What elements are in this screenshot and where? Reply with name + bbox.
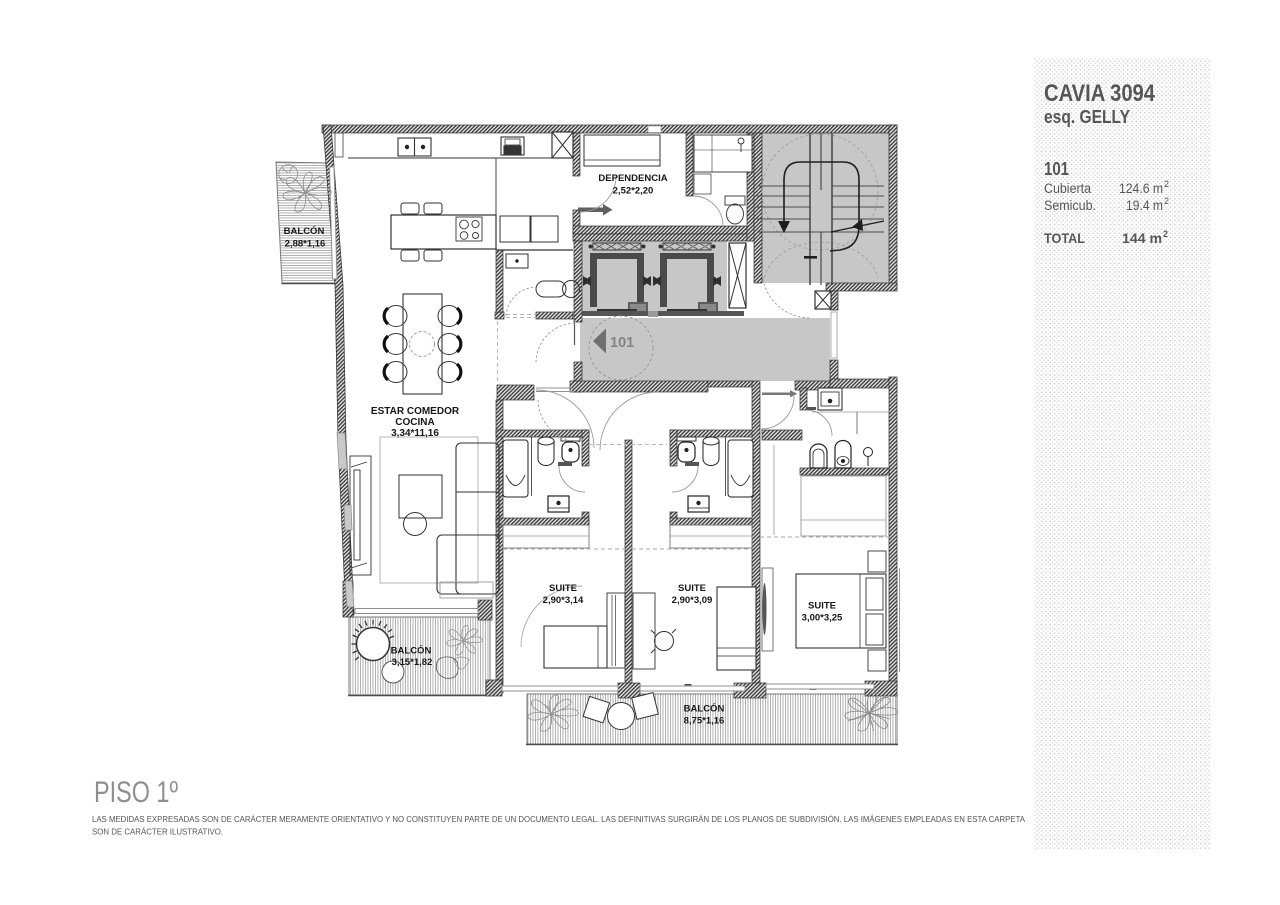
svg-text:144 m: 144 m [1122, 230, 1162, 246]
svg-text:DEPENDENCIA: DEPENDENCIA [598, 173, 667, 184]
svg-text:SUITE: SUITE [808, 601, 836, 612]
svg-text:ESTAR COMEDOR: ESTAR COMEDOR [371, 406, 460, 417]
svg-text:3,34*11,16: 3,34*11,16 [391, 428, 439, 439]
svg-text:PISO 1º: PISO 1º [94, 776, 178, 809]
svg-text:LAS MEDIDAS EXPRESADAS SON DE: LAS MEDIDAS EXPRESADAS SON DE CARÁCTER M… [92, 814, 1025, 824]
svg-text:101: 101 [610, 335, 634, 351]
svg-text:8,75*1,16: 8,75*1,16 [684, 716, 725, 727]
svg-text:BALCÓN: BALCÓN [391, 645, 432, 657]
svg-text:SUITE: SUITE [549, 583, 577, 594]
svg-text:2,90*3,14: 2,90*3,14 [543, 595, 584, 606]
svg-text:TOTAL: TOTAL [1044, 230, 1085, 246]
svg-text:2: 2 [1163, 229, 1168, 239]
svg-text:Semicub.: Semicub. [1044, 198, 1096, 213]
svg-text:19.4 m: 19.4 m [1126, 198, 1163, 213]
svg-text:esq. GELLY: esq. GELLY [1044, 107, 1130, 127]
svg-text:SON DE CARÁCTER ILUSTRATIVO.: SON DE CARÁCTER ILUSTRATIVO. [92, 827, 223, 837]
svg-text:COCINA: COCINA [395, 417, 434, 428]
svg-text:SUITE: SUITE [678, 583, 706, 594]
svg-text:3,00*3,25: 3,00*3,25 [802, 613, 843, 624]
svg-text:BALCÓN: BALCÓN [284, 225, 325, 237]
svg-text:2: 2 [1164, 196, 1169, 206]
svg-text:2,52*2,20: 2,52*2,20 [613, 186, 654, 197]
svg-text:BALCÓN: BALCÓN [684, 703, 725, 715]
svg-text:2,88*1,16: 2,88*1,16 [285, 239, 326, 250]
svg-text:CAVIA 3094: CAVIA 3094 [1044, 80, 1156, 107]
svg-text:2,90*3,09: 2,90*3,09 [672, 595, 713, 606]
svg-text:124.6 m: 124.6 m [1119, 181, 1163, 196]
svg-text:101: 101 [1044, 159, 1069, 179]
svg-text:3,15*1,82: 3,15*1,82 [392, 657, 433, 668]
svg-text:Cubierta: Cubierta [1044, 181, 1091, 196]
svg-text:2: 2 [1164, 179, 1169, 189]
